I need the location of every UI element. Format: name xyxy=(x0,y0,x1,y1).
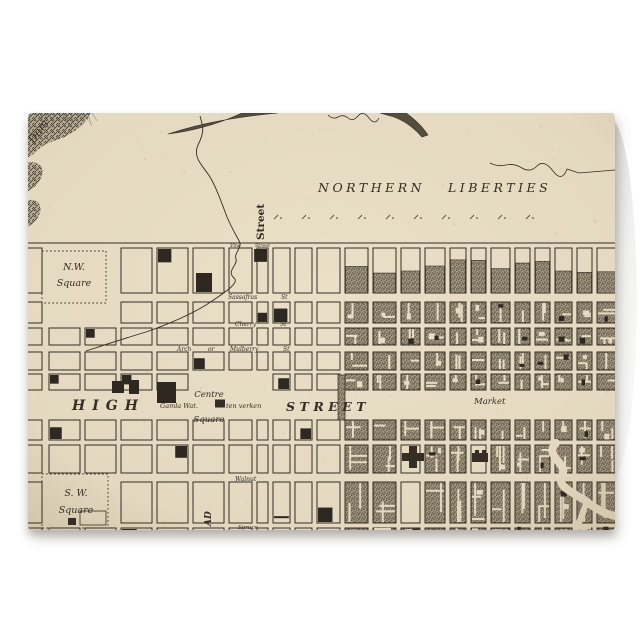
vintage-map-artwork: DamNORTHERNLIBERTIESStreetVineStreetN.W.… xyxy=(28,113,615,530)
product-photo-stage: DamNORTHERNLIBERTIESStreetVineStreetN.W.… xyxy=(0,0,644,644)
greeting-card[interactable]: DamNORTHERNLIBERTIESStreetVineStreetN.W.… xyxy=(28,113,615,530)
paper-vignette xyxy=(28,113,615,530)
